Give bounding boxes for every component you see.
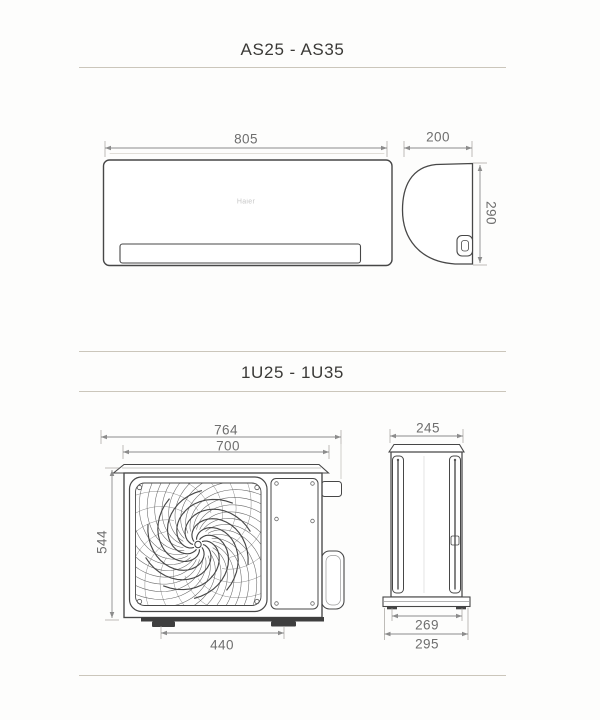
top-flange (114, 465, 329, 474)
outdoor-side-body (391, 452, 462, 597)
left-foot (152, 622, 175, 628)
dim-indoor-depth: 200 (426, 130, 450, 145)
dim-indoor-height: 290 (484, 201, 499, 225)
dim-outdoor-body-width: 700 (216, 439, 240, 454)
indoor-unit-louver (120, 244, 361, 263)
indoor-unit-side-view (403, 164, 473, 265)
dim-outdoor-base-inner: 269 (415, 618, 439, 633)
service-panel (271, 479, 318, 610)
side-top-cap (389, 445, 464, 453)
brand-logo: Haier (237, 199, 255, 206)
side-foot (456, 607, 466, 610)
dim-indoor-width: 805 (234, 132, 258, 147)
outdoor-unit-side-view (383, 445, 470, 610)
indoor-side-detail (457, 236, 473, 257)
technical-drawing-canvas (0, 0, 600, 720)
dim-outdoor-base-outer: 295 (415, 637, 439, 652)
dim-outdoor-height: 544 (95, 530, 110, 554)
outdoor-unit-front-view (106, 453, 344, 637)
pipe-cover-tab (322, 482, 342, 497)
dim-outdoor-overall-width: 764 (214, 423, 238, 438)
dim-outdoor-depth: 245 (416, 421, 440, 436)
spec-sheet-page: AS25 - AS35 1U25 - 1U35 (0, 0, 600, 720)
base-rail (141, 617, 324, 622)
dim-outdoor-feet-spacing: 440 (210, 638, 234, 653)
indoor-unit-front-view (104, 154, 393, 266)
right-foot (271, 622, 296, 627)
